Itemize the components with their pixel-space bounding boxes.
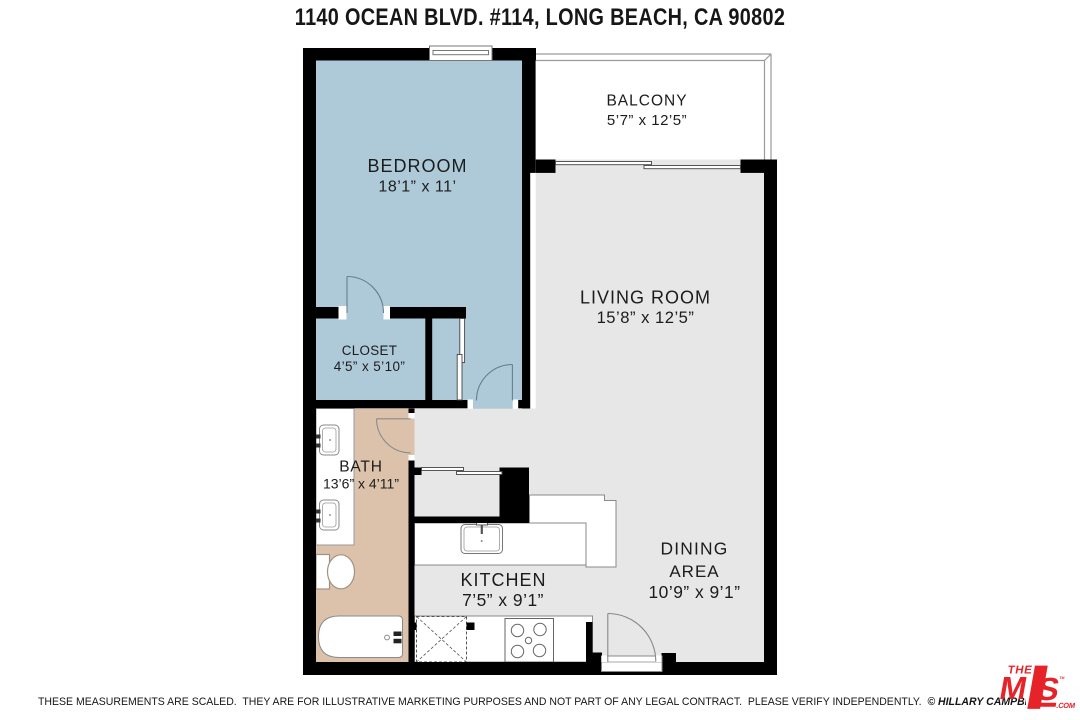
svg-text:TM: TM <box>1059 676 1065 680</box>
svg-text:7’5” x 9’1”: 7’5” x 9’1” <box>462 590 544 610</box>
svg-text:5’7” x 12’5”: 5’7” x 12’5” <box>607 112 687 129</box>
svg-text:BALCONY: BALCONY <box>606 93 687 110</box>
svg-text:AREA: AREA <box>669 562 719 581</box>
svg-text:BEDROOM: BEDROOM <box>367 156 467 176</box>
svg-text:18’1” x 11’: 18’1” x 11’ <box>378 179 456 196</box>
svg-text:KITCHEN: KITCHEN <box>460 570 546 590</box>
svg-text:CLOSET: CLOSET <box>342 343 397 358</box>
svg-text:10’9” x 9’1”: 10’9” x 9’1” <box>648 582 740 602</box>
svg-text:BATH: BATH <box>339 459 382 476</box>
svg-text:4’5” x 5’10”: 4’5” x 5’10” <box>334 359 406 374</box>
svg-text:DINING: DINING <box>660 539 728 559</box>
svg-text:.COM: .COM <box>1056 701 1076 710</box>
svg-text:LIVING ROOM: LIVING ROOM <box>580 288 711 308</box>
svg-text:13’6” x 4’11”: 13’6” x 4’11” <box>323 476 399 492</box>
svg-text:M: M <box>997 670 1030 706</box>
svg-text:15’8” x 12’5”: 15’8” x 12’5” <box>597 308 695 327</box>
